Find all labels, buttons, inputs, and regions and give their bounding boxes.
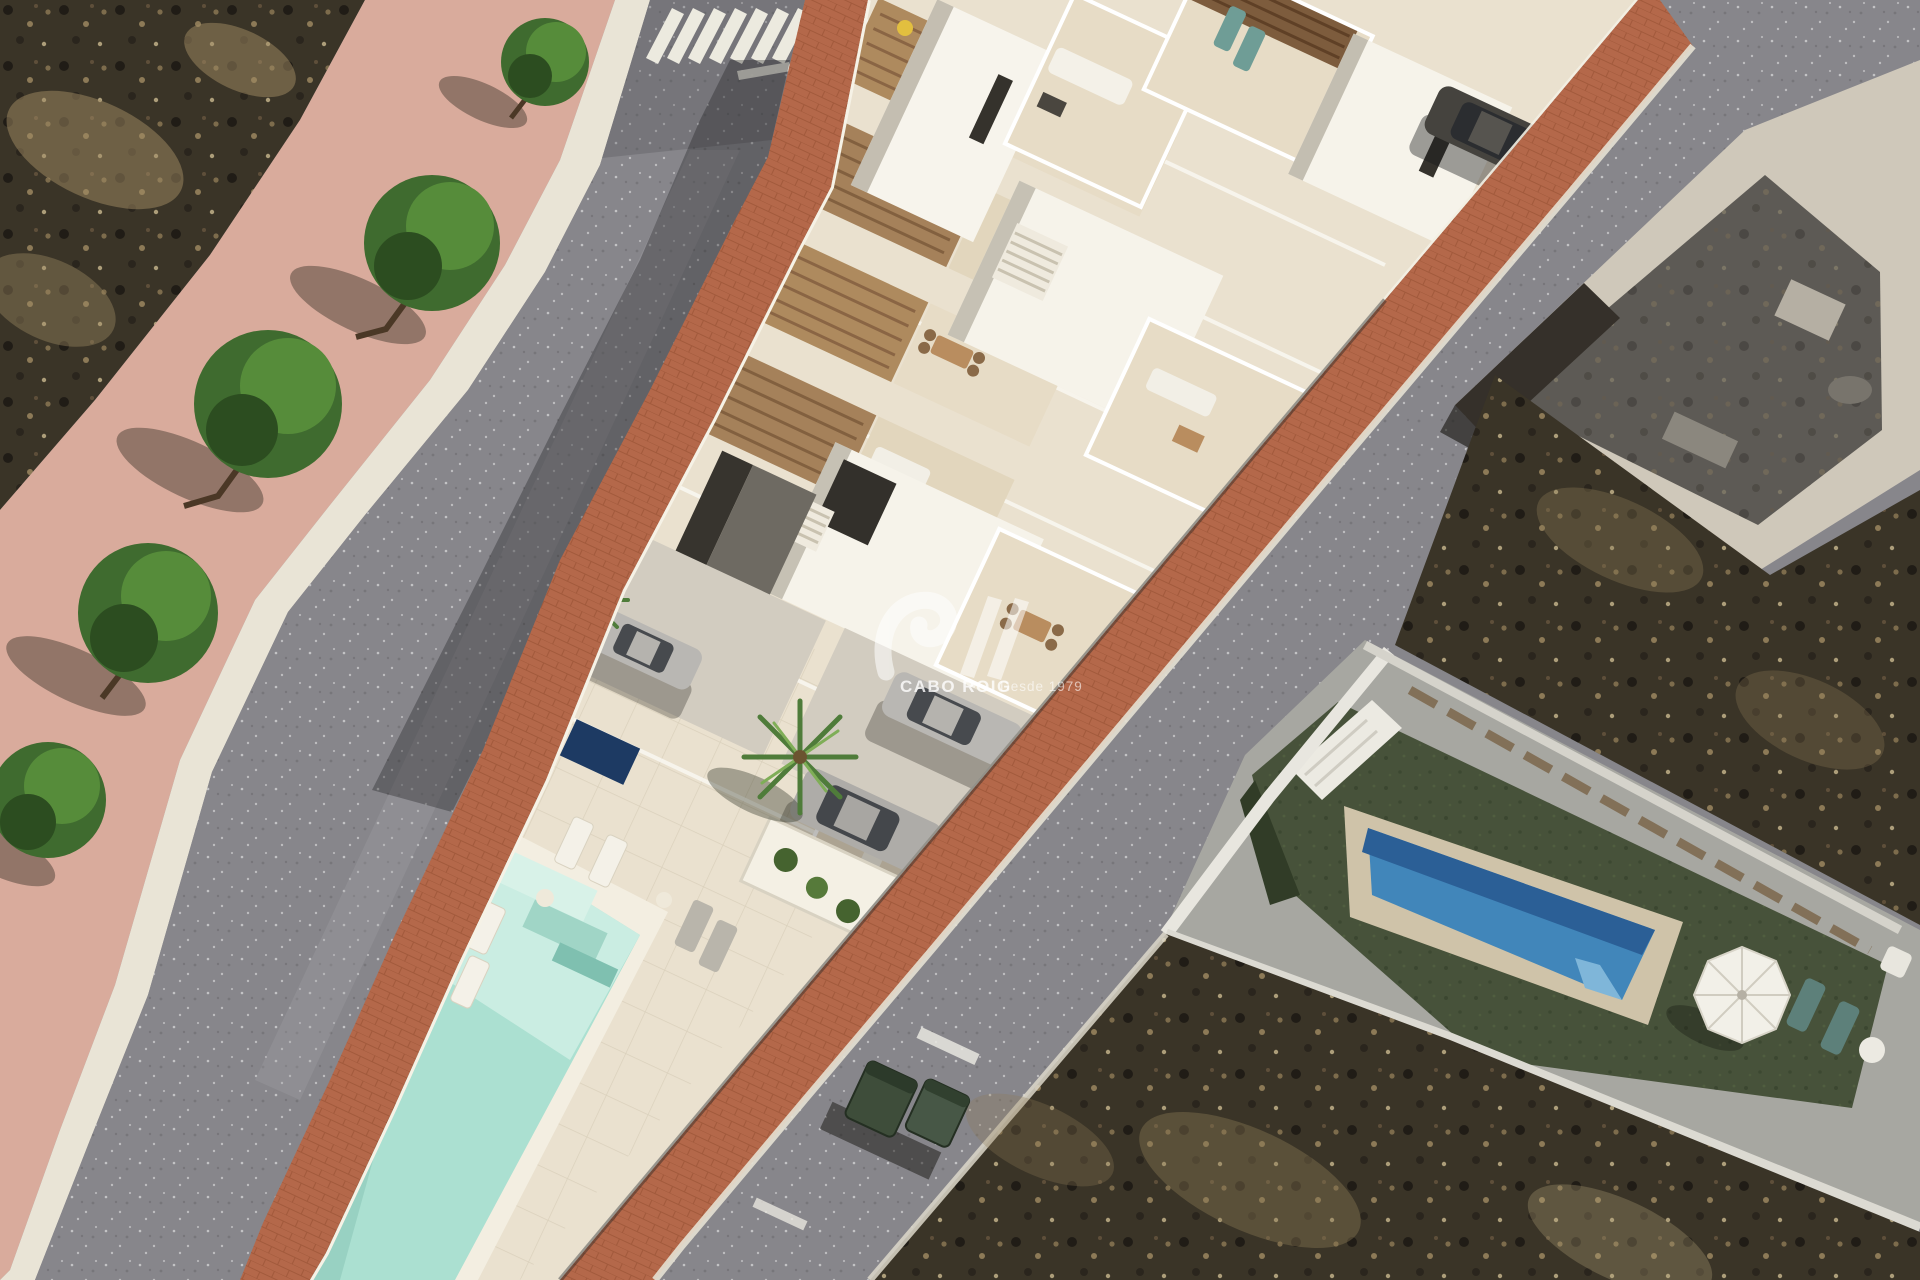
- yellow-pouf: [897, 20, 913, 36]
- side-table: [656, 892, 672, 908]
- aerial-development-render: CABO ROIG Desde 1979: [0, 0, 1920, 1280]
- watermark-brand: CABO ROIG: [900, 677, 1012, 696]
- watermark-tagline: Desde 1979: [1000, 679, 1083, 694]
- side-table: [536, 889, 554, 907]
- white-table: [1859, 1037, 1885, 1063]
